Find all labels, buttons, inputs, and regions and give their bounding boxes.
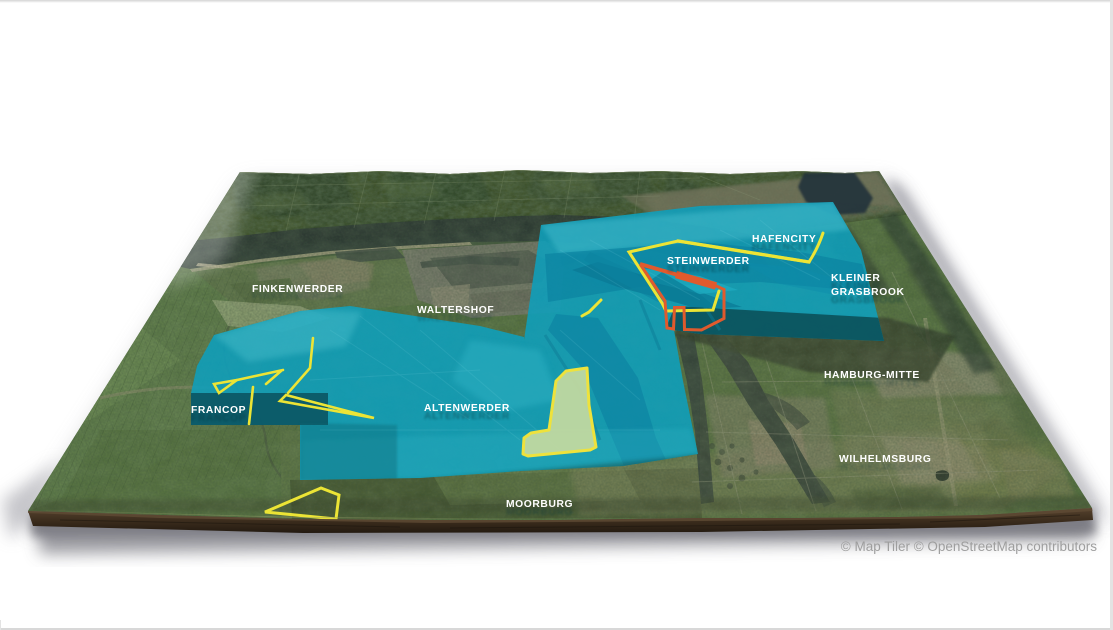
- svg-text:ALTENWERDER: ALTENWERDER: [424, 403, 510, 414]
- svg-text:WILHELMSBURG: WILHELMSBURG: [839, 454, 931, 465]
- svg-text:HAFENCITY: HAFENCITY: [752, 234, 816, 245]
- svg-text:STEINWERDER: STEINWERDER: [667, 256, 750, 267]
- svg-text:FINKENWERDER: FINKENWERDER: [252, 284, 343, 295]
- svg-text:GRASBROOK: GRASBROOK: [831, 287, 904, 298]
- svg-text:© Map Tiler © OpenStreetMap co: © Map Tiler © OpenStreetMap contributors: [841, 539, 1097, 554]
- svg-text:WALTERSHOF: WALTERSHOF: [417, 305, 494, 316]
- svg-text:HAMBURG-MITTE: HAMBURG-MITTE: [824, 370, 920, 381]
- svg-text:KLEINER: KLEINER: [831, 273, 880, 284]
- svg-text:MOORBURG: MOORBURG: [506, 499, 573, 510]
- svg-text:FRANCOP: FRANCOP: [191, 405, 246, 416]
